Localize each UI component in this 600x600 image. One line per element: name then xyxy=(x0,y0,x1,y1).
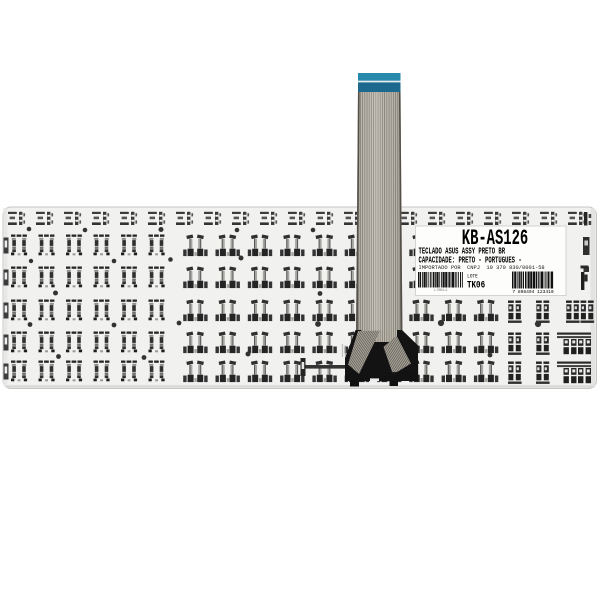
svg-text:IMPORTADO POR CNPJ 10 370 83: IMPORTADO POR CNPJ 10 370 830/0001-58 xyxy=(419,265,545,271)
svg-text:7 898494 123410: 7 898494 123410 xyxy=(512,289,554,295)
svg-text:TK06: TK06 xyxy=(467,280,485,291)
svg-text:LOTE: LOTE xyxy=(467,273,477,280)
svg-text:L 0951-4: L 0951-4 xyxy=(434,288,447,292)
